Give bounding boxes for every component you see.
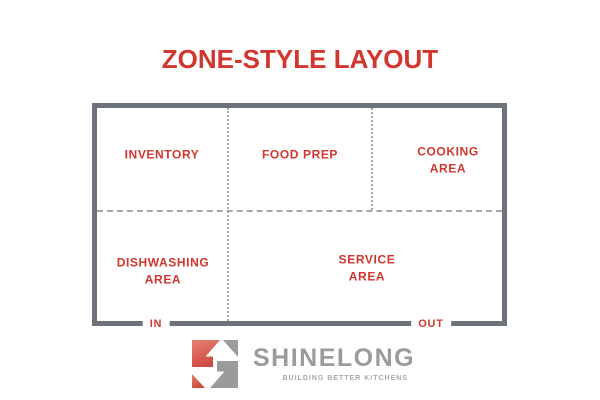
zone-label-service-area: SERVICE AREA bbox=[339, 252, 396, 287]
logo-tagline: BUILDING BETTER KITCHENS bbox=[253, 375, 411, 382]
zone-label-food-prep: FOOD PREP bbox=[262, 146, 338, 163]
entrance-in-label: IN bbox=[143, 316, 170, 332]
exit-out-label: OUT bbox=[411, 316, 451, 332]
page-title: ZONE-STYLE LAYOUT bbox=[0, 44, 600, 75]
logo-wordmark: SHINELONG bbox=[253, 344, 411, 373]
divider-vertical-right bbox=[371, 108, 373, 210]
shinelong-logo-icon bbox=[192, 340, 238, 388]
zone-label-inventory: INVENTORY bbox=[125, 146, 200, 163]
divider-horizontal bbox=[97, 210, 502, 212]
infographic-page: { "title": "ZONE-STYLE LAYOUT", "colors"… bbox=[0, 0, 600, 400]
shinelong-logo-text: SHINELONG BUILDING BETTER KITCHENS bbox=[253, 344, 411, 382]
floor-plan: INVENTORY FOOD PREP COOKING AREA DISHWAS… bbox=[92, 103, 507, 326]
zone-label-dishwashing-area: DISHWASHING AREA bbox=[117, 255, 210, 290]
zone-label-cooking-area: COOKING AREA bbox=[417, 144, 479, 179]
divider-vertical-left bbox=[227, 108, 229, 321]
